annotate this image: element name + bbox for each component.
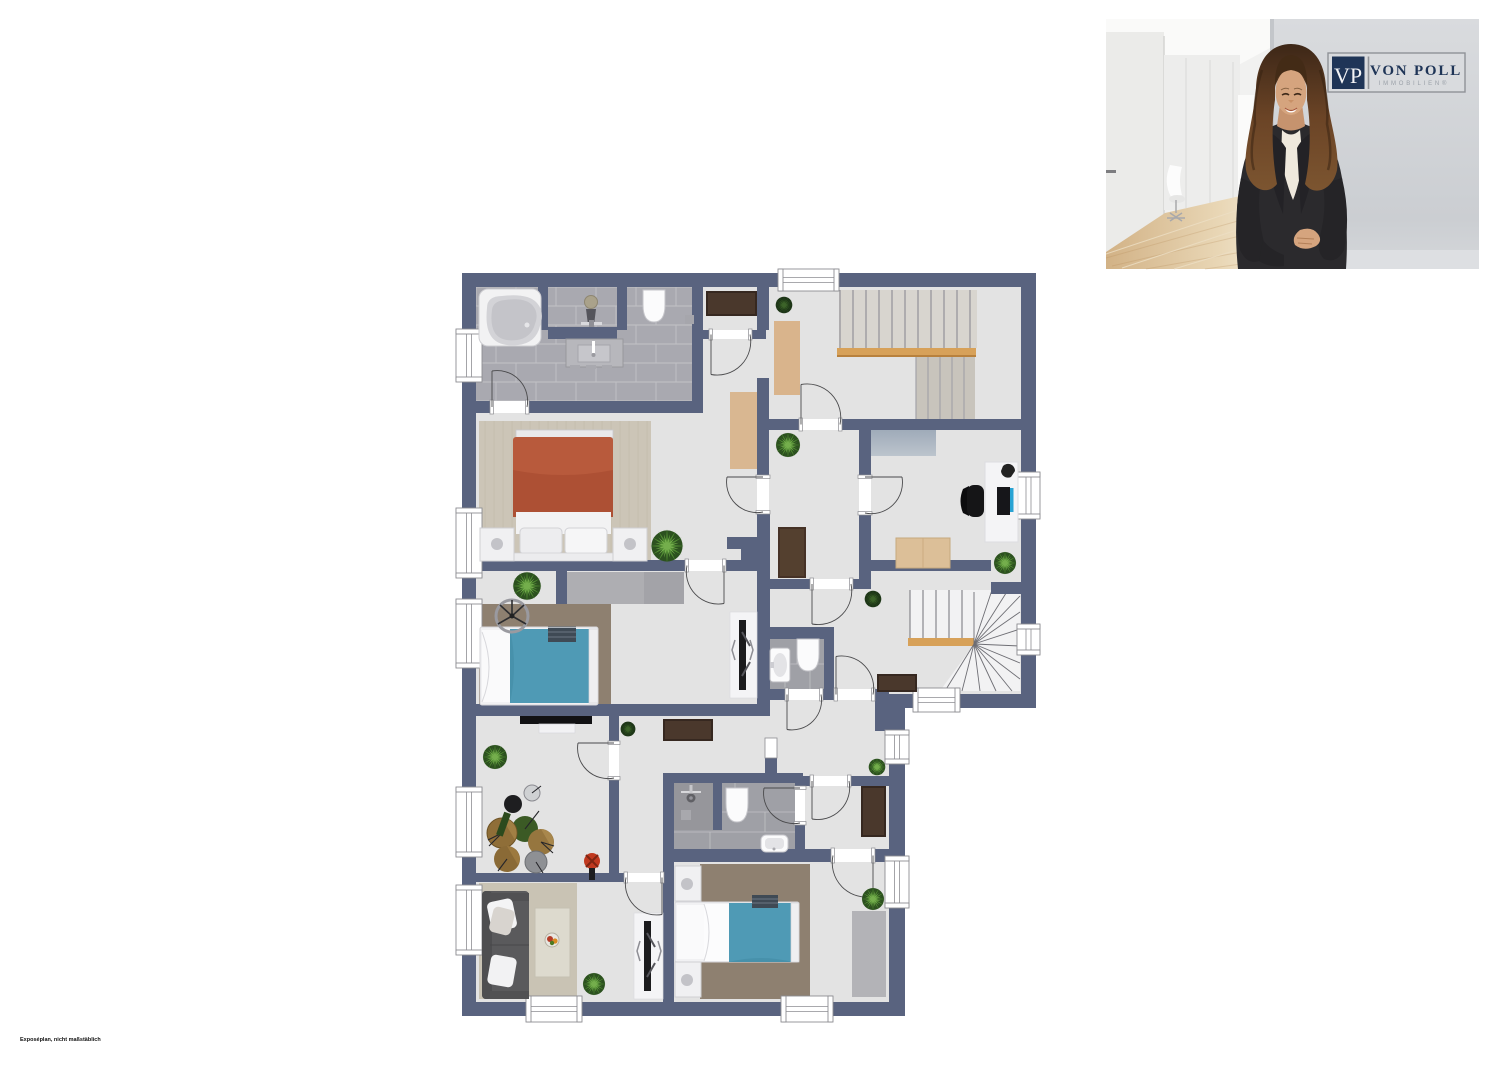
svg-text:IMMOBILIEN®: IMMOBILIEN® (1379, 80, 1450, 87)
svg-text:Exposéplan, nicht maßstäblich: Exposéplan, nicht maßstäblich (20, 1037, 101, 1043)
svg-text:VP: VP (1334, 63, 1362, 88)
svg-text:VON POLL: VON POLL (1370, 63, 1462, 79)
